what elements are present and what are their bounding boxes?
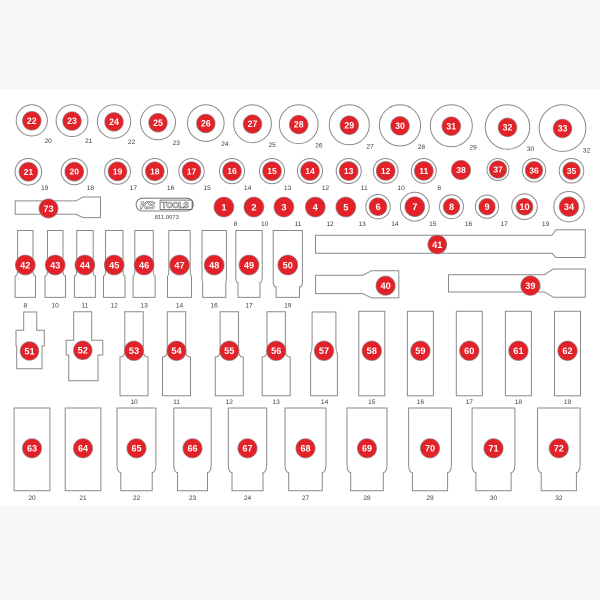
svg-text:30: 30 (527, 146, 535, 153)
svg-text:55: 55 (224, 346, 234, 356)
svg-text:28: 28 (363, 495, 371, 502)
svg-text:45: 45 (109, 260, 119, 270)
svg-text:10: 10 (130, 399, 138, 406)
svg-text:47: 47 (174, 260, 184, 270)
svg-text:25: 25 (269, 142, 277, 149)
svg-text:19: 19 (41, 185, 49, 192)
svg-text:32: 32 (503, 123, 513, 133)
svg-text:28: 28 (294, 120, 304, 130)
svg-text:19: 19 (284, 303, 292, 310)
svg-text:9: 9 (484, 202, 489, 212)
svg-text:811.0073: 811.0073 (155, 215, 180, 221)
svg-text:27: 27 (302, 495, 310, 502)
svg-text:44: 44 (80, 260, 91, 270)
svg-text:12: 12 (326, 221, 334, 228)
svg-text:20: 20 (70, 167, 80, 177)
svg-text:12: 12 (226, 399, 234, 406)
svg-text:14: 14 (176, 303, 184, 310)
svg-text:19: 19 (542, 221, 550, 228)
svg-text:17: 17 (245, 303, 253, 310)
svg-text:16: 16 (417, 399, 425, 406)
svg-text:24: 24 (244, 495, 252, 502)
svg-text:11: 11 (173, 399, 180, 406)
svg-text:17: 17 (466, 399, 474, 406)
svg-text:8: 8 (23, 303, 27, 310)
svg-text:51: 51 (24, 346, 34, 356)
svg-text:69: 69 (362, 444, 372, 454)
svg-text:48: 48 (209, 260, 219, 270)
svg-text:8: 8 (437, 185, 441, 192)
svg-text:16: 16 (227, 166, 237, 176)
svg-text:19: 19 (564, 399, 572, 406)
svg-text:53: 53 (129, 346, 139, 356)
svg-text:63: 63 (27, 444, 37, 454)
svg-text:54: 54 (171, 346, 182, 356)
svg-text:20: 20 (45, 138, 53, 145)
svg-text:49: 49 (244, 260, 254, 270)
svg-text:10: 10 (52, 303, 60, 310)
svg-text:66: 66 (187, 444, 197, 454)
svg-text:68: 68 (300, 444, 310, 454)
svg-text:KS: KS (140, 200, 155, 212)
svg-text:38: 38 (456, 165, 466, 175)
svg-text:59: 59 (415, 346, 425, 356)
svg-text:31: 31 (446, 121, 456, 131)
svg-text:23: 23 (173, 140, 181, 147)
svg-text:13: 13 (140, 303, 148, 310)
svg-text:70: 70 (425, 444, 435, 454)
svg-text:26: 26 (201, 119, 211, 129)
svg-text:13: 13 (358, 221, 366, 228)
svg-text:22: 22 (128, 139, 136, 146)
svg-text:50: 50 (283, 260, 293, 270)
svg-text:32: 32 (555, 495, 563, 502)
svg-text:25: 25 (153, 118, 163, 128)
svg-text:39: 39 (525, 281, 535, 291)
svg-text:30: 30 (490, 495, 498, 502)
svg-text:22: 22 (133, 495, 141, 502)
svg-text:24: 24 (221, 141, 229, 148)
svg-text:21: 21 (79, 495, 87, 502)
svg-text:23: 23 (189, 495, 197, 502)
svg-text:10: 10 (519, 202, 529, 212)
svg-text:21: 21 (24, 167, 34, 177)
svg-text:58: 58 (367, 346, 377, 356)
svg-text:67: 67 (242, 444, 252, 454)
svg-text:20: 20 (28, 495, 36, 502)
svg-text:18: 18 (150, 166, 160, 176)
svg-text:42: 42 (20, 260, 30, 270)
svg-text:15: 15 (267, 166, 277, 176)
svg-text:10: 10 (261, 221, 269, 228)
svg-text:41: 41 (432, 240, 442, 250)
svg-text:14: 14 (305, 166, 315, 176)
svg-text:24: 24 (109, 117, 119, 127)
svg-text:14: 14 (321, 399, 329, 406)
svg-text:35: 35 (567, 166, 577, 176)
svg-text:29: 29 (344, 120, 354, 130)
svg-text:30: 30 (395, 121, 405, 131)
svg-text:64: 64 (78, 444, 88, 454)
svg-text:11: 11 (419, 166, 428, 176)
svg-text:13: 13 (344, 166, 354, 176)
svg-text:27: 27 (248, 119, 258, 129)
svg-text:16: 16 (211, 303, 219, 310)
svg-text:13: 13 (284, 185, 292, 192)
svg-text:7: 7 (412, 202, 417, 212)
svg-text:1: 1 (221, 202, 226, 212)
svg-text:15: 15 (368, 399, 376, 406)
svg-text:37: 37 (493, 165, 503, 175)
svg-text:61: 61 (513, 346, 523, 356)
svg-text:4: 4 (313, 202, 319, 212)
svg-text:11: 11 (361, 185, 368, 192)
svg-text:3: 3 (281, 202, 286, 212)
svg-text:29: 29 (469, 145, 477, 152)
svg-text:8: 8 (449, 202, 454, 212)
svg-text:5: 5 (343, 202, 348, 212)
svg-text:6: 6 (375, 202, 380, 212)
svg-text:2: 2 (251, 202, 256, 212)
svg-text:16: 16 (167, 185, 175, 192)
svg-text:57: 57 (319, 346, 329, 356)
svg-text:16: 16 (465, 221, 473, 228)
svg-text:TOOLS: TOOLS (162, 200, 190, 210)
svg-text:18: 18 (515, 399, 523, 406)
svg-text:15: 15 (429, 221, 437, 228)
svg-text:12: 12 (111, 303, 119, 310)
svg-text:27: 27 (366, 143, 374, 150)
svg-text:17: 17 (130, 185, 138, 192)
svg-text:32: 32 (583, 148, 591, 155)
svg-text:73: 73 (43, 204, 53, 214)
svg-text:14: 14 (244, 185, 252, 192)
svg-text:33: 33 (558, 124, 568, 134)
svg-text:40: 40 (380, 281, 390, 291)
svg-text:65: 65 (131, 444, 141, 454)
svg-text:14: 14 (391, 221, 399, 228)
svg-text:60: 60 (464, 346, 474, 356)
svg-text:36: 36 (529, 165, 539, 175)
svg-text:56: 56 (271, 346, 281, 356)
svg-text:23: 23 (67, 116, 77, 126)
svg-text:71: 71 (488, 444, 498, 454)
svg-text:11: 11 (81, 303, 88, 310)
svg-text:17: 17 (187, 166, 197, 176)
svg-text:13: 13 (273, 399, 281, 406)
svg-text:15: 15 (204, 185, 212, 192)
svg-text:26: 26 (315, 143, 323, 150)
svg-text:72: 72 (554, 444, 564, 454)
svg-text:17: 17 (501, 221, 509, 228)
svg-text:62: 62 (562, 346, 572, 356)
svg-text:12: 12 (322, 185, 330, 192)
svg-text:19: 19 (113, 167, 123, 177)
svg-text:22: 22 (27, 116, 37, 126)
svg-text:43: 43 (50, 260, 60, 270)
svg-text:11: 11 (295, 221, 302, 228)
svg-text:34: 34 (564, 202, 575, 212)
svg-text:18: 18 (87, 185, 95, 192)
svg-text:12: 12 (381, 166, 391, 176)
svg-text:29: 29 (426, 495, 434, 502)
svg-text:28: 28 (418, 144, 426, 151)
svg-text:21: 21 (85, 138, 93, 145)
svg-text:52: 52 (78, 346, 88, 356)
svg-text:10: 10 (397, 185, 405, 192)
svg-text:46: 46 (139, 260, 149, 270)
svg-text:8: 8 (234, 221, 238, 228)
